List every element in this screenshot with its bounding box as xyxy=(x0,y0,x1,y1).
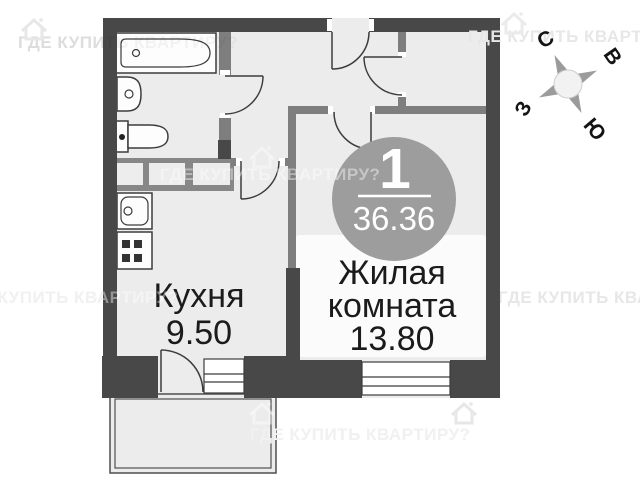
floor-plan: Кухня 9.50 Жилая комната 13.80 1 36.36 xyxy=(102,18,500,473)
badge-room-count: 1 xyxy=(379,137,411,201)
kitchen-area: 9.50 xyxy=(166,314,232,352)
partition-closet-room-lower xyxy=(398,97,406,106)
total-area-badge: 1 36.36 xyxy=(332,137,456,261)
house-logo-icon xyxy=(452,402,476,423)
wall-bottom-living-left xyxy=(296,360,362,398)
closet-section xyxy=(117,163,143,185)
window-kitchen-balcony xyxy=(204,359,244,393)
wall-bathroom-pier xyxy=(218,140,231,159)
living-area: 13.80 xyxy=(349,320,434,358)
wall-left xyxy=(103,18,117,398)
wall-top-left xyxy=(103,18,332,32)
watermark-text: ГДЕ КУПИТЬ КВАРТИРУ? xyxy=(0,288,178,307)
partition-bathroom-lower xyxy=(219,118,231,140)
compass-south: Ю xyxy=(579,114,611,145)
compass-center xyxy=(554,70,582,98)
watermark-text: ГДЕ КУПИТЬ КВАРТИРУ? xyxy=(498,288,640,307)
watermark-text: ГДЕ КУПИТЬ КВАРТИРУ? xyxy=(18,33,238,52)
wall-right xyxy=(486,18,500,398)
floor-plan-page: ГДЕ КУПИТЬ КВАРТИРУ? ГДЕ КУПИТЬ КВАРТИРУ… xyxy=(0,0,640,480)
partition-hall-living-right xyxy=(370,106,486,114)
bathroom-sink-icon xyxy=(117,77,141,111)
watermark-text: ГДЕ КУПИТЬ КВАРТИРУ? xyxy=(250,425,470,444)
compass-east: В xyxy=(599,44,627,70)
badge-total-area: 36.36 xyxy=(353,200,436,237)
partition-hall-living-left xyxy=(296,106,333,114)
wall-bottom-kitchen-left xyxy=(102,356,158,398)
stove-icon xyxy=(117,232,152,269)
partition-hall-vertical xyxy=(288,106,296,268)
floor-plan-drawing: ГДЕ КУПИТЬ КВАРТИРУ? ГДЕ КУПИТЬ КВАРТИРУ… xyxy=(0,0,640,480)
wall-bottom-living-right xyxy=(450,360,500,398)
compass-west: З xyxy=(510,97,536,120)
kitchen-sink-icon xyxy=(117,193,152,229)
wall-kitchen-living xyxy=(286,268,300,363)
window-living-room xyxy=(362,362,450,395)
